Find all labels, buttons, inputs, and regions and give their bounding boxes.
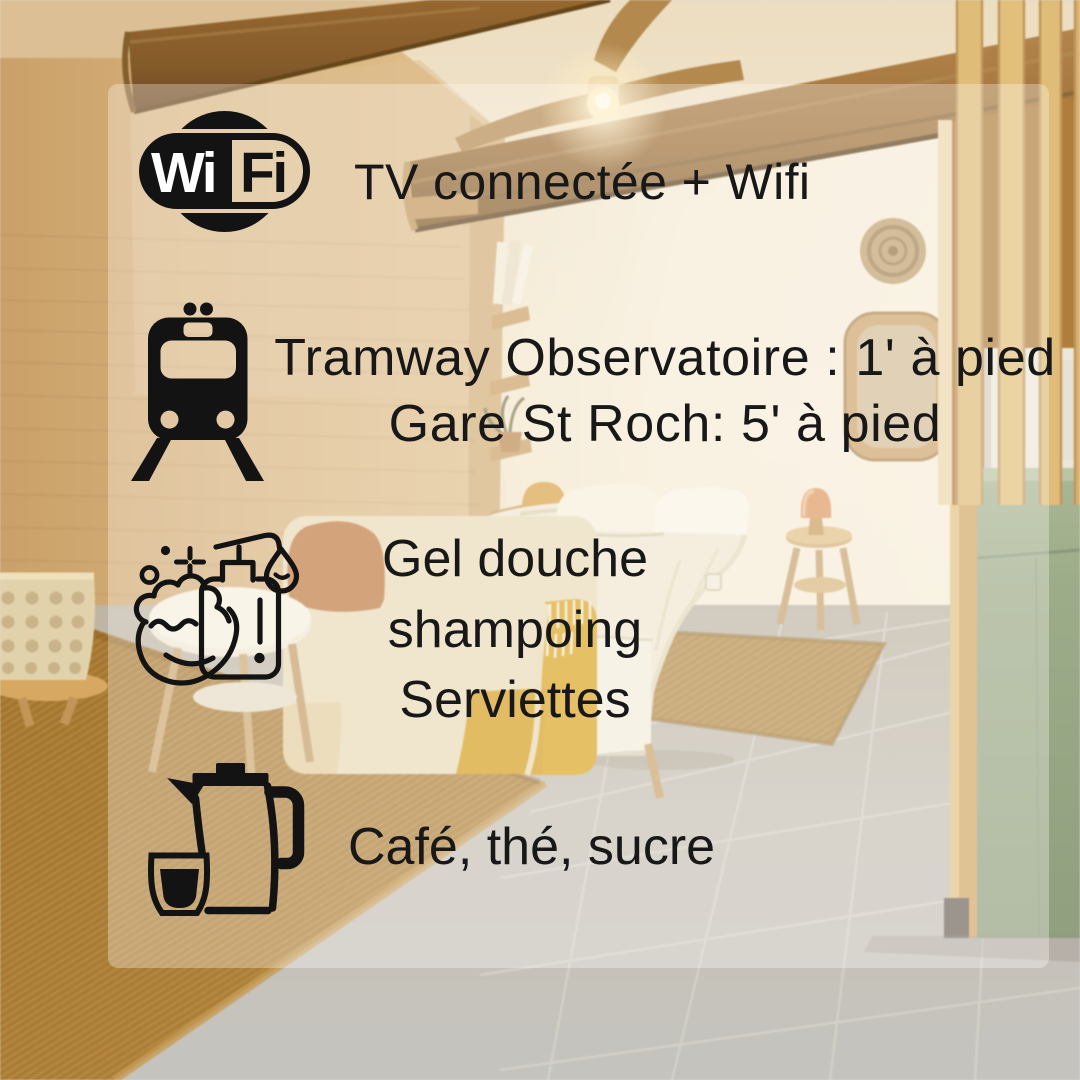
svg-text:Wi: Wi	[151, 141, 215, 205]
svg-text:Fi: Fi	[240, 141, 286, 205]
